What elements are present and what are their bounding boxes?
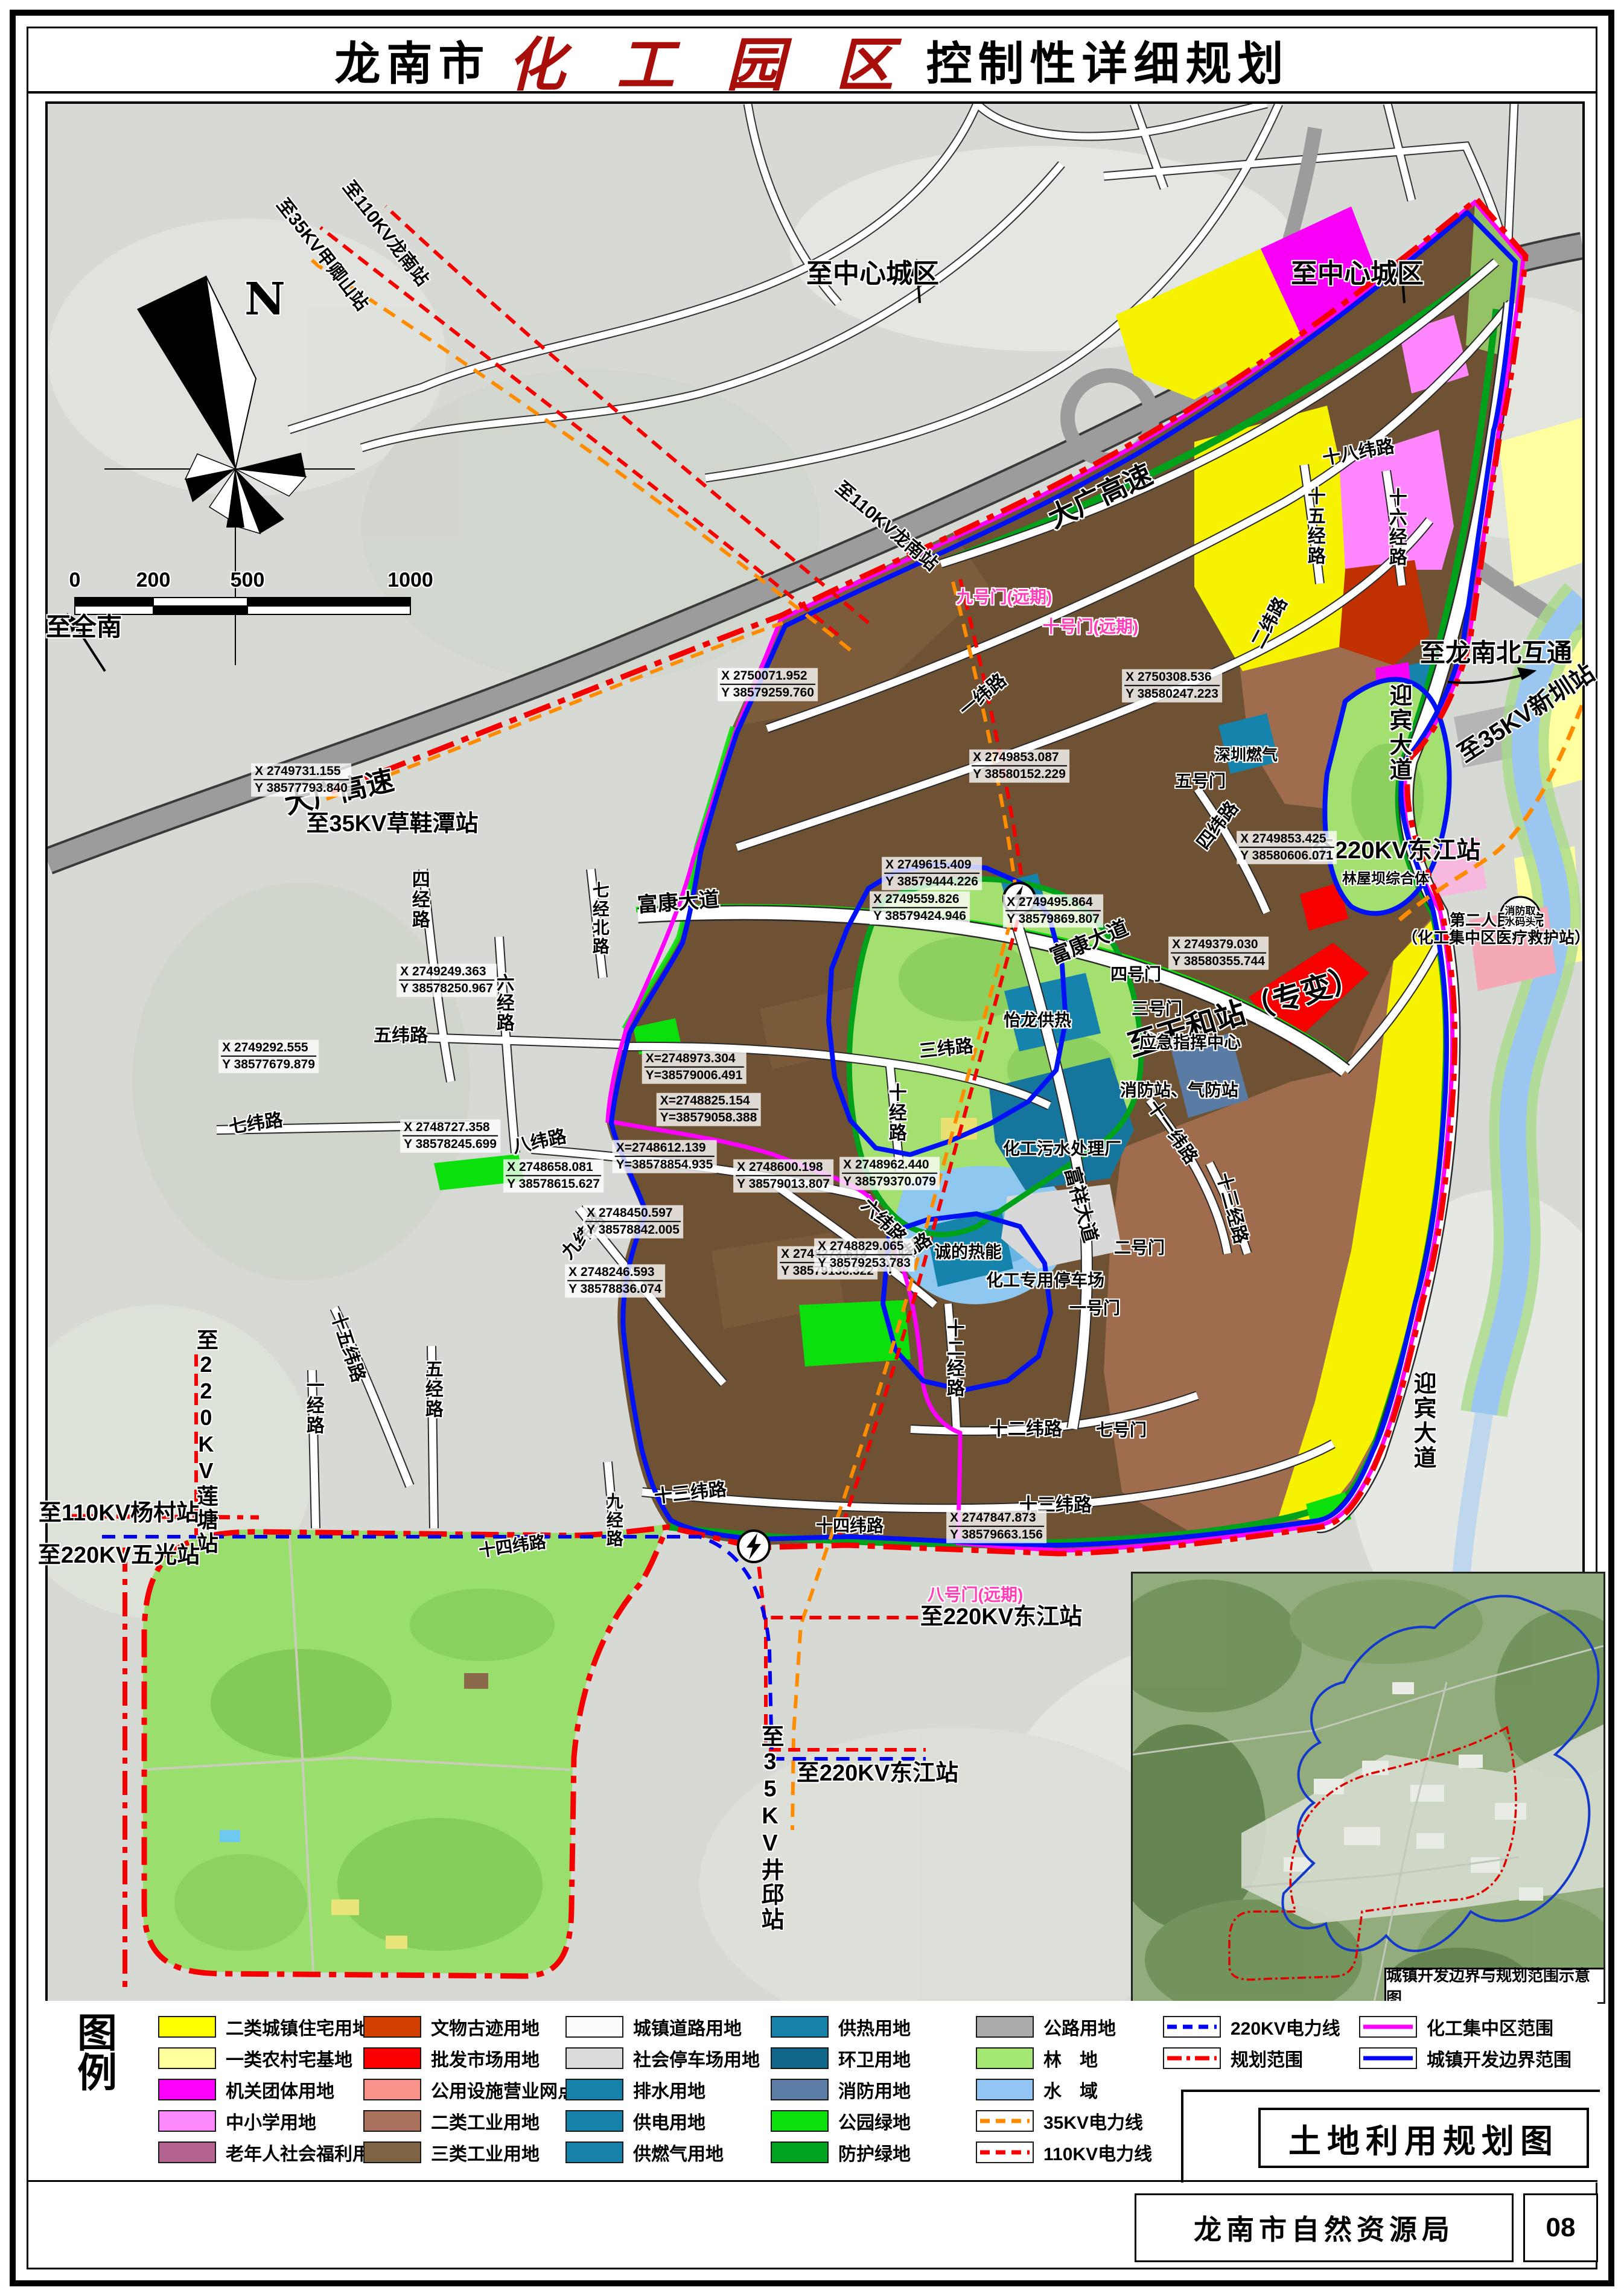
legend-label: 机关团体用地 <box>226 2076 334 2103</box>
legend-label: 水 域 <box>1043 2076 1098 2103</box>
legend-label: 220KV电力线 <box>1231 2014 1340 2040</box>
legend-item: 排水用地 <box>565 2078 705 2102</box>
legend-swatch <box>1359 2016 1417 2038</box>
legend-item: 中小学用地 <box>158 2109 316 2133</box>
legend-label: 排水用地 <box>633 2076 705 2103</box>
legend-swatch <box>771 2079 829 2100</box>
legend-swatch <box>363 2047 421 2069</box>
legend-swatch <box>565 2141 623 2163</box>
legend-label: 化工集中区范围 <box>1427 2014 1553 2040</box>
legend-swatch <box>976 2141 1034 2163</box>
legend-label: 消防用地 <box>838 2076 911 2103</box>
legend-swatch <box>158 2079 216 2100</box>
legend-item: 化工集中区范围 <box>1359 2015 1553 2039</box>
legend-label: 环卫用地 <box>838 2045 911 2071</box>
legend-swatch <box>976 2079 1034 2100</box>
drawing-title: 土地利用规划图 <box>1258 2108 1589 2168</box>
legend-swatch <box>1359 2047 1417 2069</box>
legend-item: 二类工业用地 <box>363 2109 540 2133</box>
legend-swatch <box>976 2110 1034 2132</box>
legend-label: 社会停车场用地 <box>633 2045 760 2071</box>
legend-item: 公园绿地 <box>771 2109 911 2133</box>
legend-label: 供热用地 <box>838 2014 911 2040</box>
legend-swatch <box>1163 2016 1221 2038</box>
legend-item: 供热用地 <box>771 2015 911 2039</box>
legend-item: 35KV电力线 <box>976 2109 1143 2133</box>
legend-swatch <box>976 2047 1034 2069</box>
legend-item: 110KV电力线 <box>976 2140 1152 2164</box>
legend-item: 规划范围 <box>1163 2046 1303 2070</box>
legend-swatch <box>976 2016 1034 2038</box>
legend-swatch <box>565 2110 623 2132</box>
inset-caption: 城镇开发边界与规划范围示意图 <box>1384 1968 1603 2002</box>
legend-label: 文物古迹用地 <box>431 2014 540 2040</box>
fire-dock-icon <box>1500 897 1540 937</box>
inset-map: 城镇开发边界与规划范围示意图 <box>1131 1572 1605 2004</box>
legend-item: 机关团体用地 <box>158 2078 334 2102</box>
legend-label: 林 地 <box>1043 2045 1098 2071</box>
legend-item: 三类工业用地 <box>363 2140 540 2164</box>
legend-item: 林 地 <box>976 2046 1098 2070</box>
legend-label: 供电用地 <box>633 2108 705 2134</box>
legend-item: 社会停车场用地 <box>565 2046 760 2070</box>
legend-label: 110KV电力线 <box>1043 2139 1152 2166</box>
legend-label: 35KV电力线 <box>1043 2108 1143 2134</box>
title-highlight: 化 工 园 区 <box>507 18 909 102</box>
legend-item: 一类农村宅基地 <box>158 2046 352 2070</box>
legend-label: 中小学用地 <box>226 2108 316 2134</box>
legend-heading: 图例 <box>68 2012 123 2091</box>
legend-swatch <box>565 2079 623 2100</box>
titleblock-divider <box>28 2180 1597 2182</box>
legend-label: 公路用地 <box>1043 2014 1116 2040</box>
legend-swatch <box>363 2110 421 2132</box>
legend-swatch <box>363 2016 421 2038</box>
legend-item: 老年人社会福利用地 <box>158 2140 389 2164</box>
legend-item: 消防用地 <box>771 2078 911 2102</box>
legend-swatch <box>158 2141 216 2163</box>
legend-swatch <box>158 2110 216 2132</box>
legend-item: 供电用地 <box>565 2109 705 2133</box>
legend-label: 三类工业用地 <box>431 2139 540 2166</box>
map-canvas: 至中心城区至中心城区至龙南北互通至全南大广高速大广高速至35KV草鞋潭站至35K… <box>45 101 1585 2006</box>
legend-swatch <box>771 2141 829 2163</box>
legend-label: 城镇道路用地 <box>633 2014 742 2040</box>
legend-label: 二类城镇住宅用地 <box>226 2014 371 2040</box>
legend-item: 公路用地 <box>976 2015 1116 2039</box>
legend-item: 供燃气用地 <box>565 2140 724 2164</box>
legend-item: 文物古迹用地 <box>363 2015 540 2039</box>
title-prefix: 龙南市 <box>334 27 490 93</box>
legend-swatch <box>565 2047 623 2069</box>
title-suffix: 控制性详细规划 <box>926 27 1290 93</box>
legend-label: 一类农村宅基地 <box>226 2045 352 2071</box>
legend-swatch <box>363 2141 421 2163</box>
legend-label: 批发市场用地 <box>431 2045 540 2071</box>
inset-satellite <box>1133 1574 1603 2002</box>
legend-item: 二类城镇住宅用地 <box>158 2015 371 2039</box>
legend-label: 规划范围 <box>1231 2045 1303 2071</box>
legend-swatch <box>158 2047 216 2069</box>
sheet-title: 龙南市 化 工 园 区 控制性详细规划 <box>28 28 1596 94</box>
legend-item: 城镇道路用地 <box>565 2015 742 2039</box>
legend-label: 公园绿地 <box>838 2108 911 2134</box>
legend-item: 220KV电力线 <box>1163 2015 1340 2039</box>
legend-item: 批发市场用地 <box>363 2046 540 2070</box>
sheet-number: 08 <box>1523 2193 1598 2262</box>
legend-label: 供燃气用地 <box>633 2139 724 2166</box>
legend-swatch <box>363 2079 421 2100</box>
agency-name: 龙南市自然资源局 <box>1135 2193 1514 2262</box>
scale-bar <box>75 598 410 614</box>
legend-label: 城镇开发边界范围 <box>1427 2045 1571 2071</box>
legend-label: 防护绿地 <box>838 2139 911 2166</box>
legend-label: 二类工业用地 <box>431 2108 540 2134</box>
legend-item: 城镇开发边界范围 <box>1359 2046 1571 2070</box>
legend-swatch <box>771 2047 829 2069</box>
legend-item: 水 域 <box>976 2078 1098 2102</box>
legend-item: 防护绿地 <box>771 2140 911 2164</box>
legend-swatch <box>565 2016 623 2038</box>
legend-swatch <box>158 2016 216 2038</box>
legend-swatch <box>771 2110 829 2132</box>
legend-swatch <box>1163 2047 1221 2069</box>
legend-swatch <box>771 2016 829 2038</box>
legend-item: 环卫用地 <box>771 2046 911 2070</box>
